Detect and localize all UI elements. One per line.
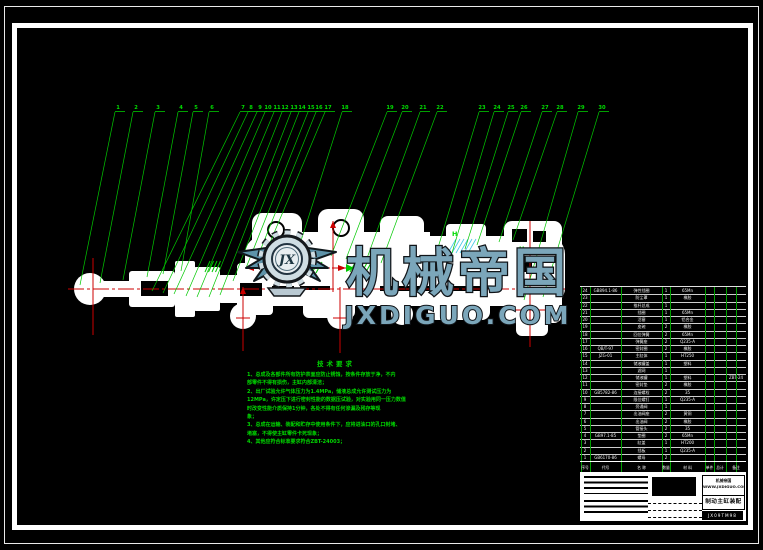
provider-line2: WWW.JXDIGUO.COM	[703, 484, 744, 490]
tech-notes: 技术要求 1、总成及各部件所有防护表面应防止锈蚀，按条件存放于净，不内部零件不得…	[247, 358, 425, 447]
tech-note-line: 3、总成在运输、装配和贮存中使用条件下，应将进油口的孔口封堵、	[247, 421, 425, 429]
balloon-number: 26	[520, 105, 528, 111]
balloon-number: 5	[194, 105, 198, 111]
bom-cell-name: 推杆总成	[621, 302, 662, 309]
bom-column-line	[726, 287, 727, 473]
bom-table: 24GB894.1-86弹性挡圈165Mn23防尘罩1橡胶22推杆总成121挡圈…	[580, 286, 746, 473]
bom-cell-name: 滤网	[621, 367, 662, 374]
bom-cell-mat: 65Mn	[670, 287, 705, 294]
signature-line	[648, 510, 702, 511]
balloon-number: 1	[116, 105, 120, 111]
bom-cell-qty: 2	[662, 345, 670, 352]
bom-cell-code: QB/T-97	[590, 345, 621, 352]
bom-column-line	[662, 287, 663, 473]
bom-cell-code	[590, 338, 621, 345]
balloon-number: 16	[315, 105, 323, 111]
bom-cell-mat	[670, 403, 705, 410]
bom-column-line	[736, 287, 737, 473]
balloon-number: 6	[210, 105, 214, 111]
bom-cell-qty: 2	[662, 425, 670, 432]
bom-cell-name: 螺母	[621, 454, 662, 461]
bom-cell-mat: 65Mn	[670, 432, 705, 439]
bom-cell-name: 出油阀	[621, 418, 662, 425]
balloon-number: 17	[324, 105, 332, 111]
bom-cell-qty: 2	[662, 418, 670, 425]
bom-cell-code	[590, 439, 621, 446]
bom-cell-code	[590, 331, 621, 338]
watermark-site-text: JXDIGUO.COM	[342, 301, 571, 330]
bom-cell-qty: 1	[662, 439, 670, 446]
bom-cell-mat: HT200	[670, 439, 705, 446]
bom-cell-qty: 1	[662, 287, 670, 294]
bom-cell-mat: 橡胶	[670, 345, 705, 352]
bom-cell-name: 防尘罩	[621, 294, 662, 301]
bom-cell-name: 回位弹簧	[621, 331, 662, 338]
drawing-number-box	[652, 477, 696, 496]
bom-cell-mat: 橡胶	[670, 418, 705, 425]
bom-cell-code	[590, 410, 621, 417]
drawing-code: JX09TM98	[702, 511, 743, 520]
balloon-number: 7	[241, 105, 245, 111]
bom-cell-mat: 35	[670, 389, 705, 396]
bom-cell-name: 垫圈	[621, 432, 662, 439]
bom-cell-code	[590, 323, 621, 330]
bom-cell-qty: 2	[662, 410, 670, 417]
bom-cell-qty: 1	[662, 352, 670, 359]
provider-box: 机械帝国 WWW.JXDIGUO.COM	[702, 475, 745, 496]
leader-line	[163, 112, 193, 274]
bom-cell-name: 储液罐	[621, 374, 662, 381]
balloon-number: 2	[134, 105, 138, 111]
drawing-title: 制动主缸装配图	[702, 495, 745, 510]
bom-cell-mat	[670, 454, 705, 461]
watermark-monogram: JX	[276, 253, 296, 268]
balloon-number: 19	[386, 105, 394, 111]
tech-note-lines: 1、总成及各部件所有防护表面应防止锈蚀，按条件存放于净，不内部零件不得有损伤，主…	[247, 371, 425, 447]
bom-cell-code	[590, 403, 621, 410]
tech-note-line: 2、出厂试验允许气体压力为1.4MPa，储液总成允许测试压力为	[247, 388, 425, 396]
bom-cell-qty: 1	[662, 396, 670, 403]
bom-column-line	[581, 287, 582, 473]
balloon-number: 18	[341, 105, 349, 111]
revision-table-upper	[584, 476, 648, 494]
bom-cell-code	[590, 381, 621, 388]
bom-cell-qty: 1	[662, 447, 670, 454]
balloon-number: 8	[249, 105, 253, 111]
bom-cell-mat: 橡胶	[670, 323, 705, 330]
tech-note-line: 1、总成及各部件所有防护表面应防止锈蚀，按条件存放于净，不内	[247, 371, 425, 379]
bom-cell-mat: 65Mn	[670, 309, 705, 316]
bom-cell-name: 挡板	[621, 447, 662, 454]
bom-cell-name: 弹簧座	[621, 338, 662, 345]
bom-cell-qty: 2	[662, 331, 670, 338]
bom-cell-mat	[670, 367, 705, 374]
tech-note-line: 12MPa，许定压下进行密封性能的数据压试验，对实验用同一压力数值	[247, 396, 425, 404]
bom-cell-code	[590, 374, 621, 381]
bom-cell-mat: Q235-A	[670, 447, 705, 454]
bom-cell-code	[590, 309, 621, 316]
bom-cell-mat: 塑料	[670, 360, 705, 367]
bom-cell-code: GB6170-86	[590, 454, 621, 461]
bom-cell-name: 出油阀座	[621, 410, 662, 417]
balloon-number: 28	[556, 105, 564, 111]
balloon-number: 10	[264, 105, 272, 111]
bom-cell-name: 弹性挡圈	[621, 287, 662, 294]
bom-cell-name: 密封垫	[621, 381, 662, 388]
bom-cell-code	[590, 316, 621, 323]
bom-cell-code: GB97.1-85	[590, 432, 621, 439]
bom-cell-qty: 1	[662, 302, 670, 309]
balloon-number: 14	[298, 105, 306, 111]
balloon-number: 30	[598, 105, 606, 111]
tech-notes-title: 技术要求	[247, 358, 425, 368]
bom-cell-qty: 1	[662, 294, 670, 301]
bom-cell-mat: 铝合金	[670, 316, 705, 323]
bom-cell-code: GB5782-86	[590, 389, 621, 396]
bom-cell-qty: 1	[662, 309, 670, 316]
bom-column-line	[714, 287, 715, 473]
bom-cell-code	[590, 302, 621, 309]
bom-cell-name: 旁通阀	[621, 403, 662, 410]
balloon-number: 23	[478, 105, 486, 111]
bom-cell-qty: 1	[662, 367, 670, 374]
bom-cell-mat	[670, 302, 705, 309]
bom-cell-name: 缸盖	[621, 439, 662, 446]
tech-note-line: 堵塞，不得使主缸零件卡死现象；	[247, 430, 425, 438]
tech-note-line: 4、其他应符合标准要求符合ZBT-24003；	[247, 438, 425, 446]
bom-column-line	[621, 287, 622, 473]
leader-line	[163, 112, 248, 293]
balloon-number: 20	[401, 105, 409, 111]
bom-cell-mat: 橡胶	[670, 381, 705, 388]
signature-line	[648, 503, 702, 504]
bom-cell-code	[590, 294, 621, 301]
bom-cell-code	[590, 425, 621, 432]
bom-cell-name: 储液罐盖	[621, 360, 662, 367]
balloon-number: 22	[436, 105, 444, 111]
bom-cell-code	[590, 396, 621, 403]
bom-cell-qty: 2	[662, 454, 670, 461]
bom-column-line	[705, 287, 706, 473]
leader-line	[465, 112, 508, 249]
bom-cell-mat: Q235-A	[670, 396, 705, 403]
bom-cell-name: 密封圈	[621, 345, 662, 352]
leader-line	[80, 112, 115, 285]
bom-cell-qty: 1	[662, 403, 670, 410]
bom-cell-code	[590, 447, 621, 454]
leader-line	[147, 112, 178, 277]
balloon-number: 25	[507, 105, 515, 111]
tech-note-line: 部零件不得有损伤，主缸内部清洁；	[247, 379, 425, 387]
bom-cell-qty: 1	[662, 374, 670, 381]
bom-cell-mat: 黄铜	[670, 410, 705, 417]
bom-cell-qty: 1	[662, 316, 670, 323]
balloon-number: 3	[156, 105, 160, 111]
balloon-number: 4	[179, 105, 183, 111]
balloon-number: 12	[281, 105, 289, 111]
bom-cell-mat: Q235-A	[670, 338, 705, 345]
bom-cell-qty: 2	[662, 323, 670, 330]
bom-cell-code	[590, 418, 621, 425]
cad-sheet: H H 123456789101112131415161718192021222…	[0, 0, 763, 550]
bom-cell-mat: 塑料	[670, 374, 705, 381]
bom-cell-qty: 1	[662, 360, 670, 367]
bom-cell-qty: 2	[662, 338, 670, 345]
bom-column-line	[670, 287, 671, 473]
revision-table-lower	[584, 500, 648, 516]
bom-cell-name: 活塞	[621, 316, 662, 323]
tech-note-line: 象；	[247, 413, 425, 421]
balloon-number: 21	[419, 105, 427, 111]
bom-cell-mat: 65Mn	[670, 331, 705, 338]
balloon-number: 24	[493, 105, 501, 111]
bom-cell-mat: HT250	[670, 352, 705, 359]
bom-column-line	[590, 287, 591, 473]
bom-cell-code: JZG-01	[590, 352, 621, 359]
bom-cell-mat: 35	[670, 425, 705, 432]
balloon-number: 11	[273, 105, 281, 111]
balloon-number: 9	[258, 105, 262, 111]
signature-line	[648, 517, 702, 518]
watermark-brand-text: 机械帝国	[346, 244, 570, 304]
leader-line	[513, 112, 557, 240]
balloon-number: 29	[577, 105, 585, 111]
title-block: 机械帝国 WWW.JXDIGUO.COM 制动主缸装配图 JX09TM98	[580, 472, 746, 521]
bom-cell-name: 管接头	[621, 425, 662, 432]
leader-line	[100, 112, 133, 283]
bom-cell-code	[590, 360, 621, 367]
bom-cell-name: 挡圈	[621, 309, 662, 316]
balloon-number: 15	[307, 105, 315, 111]
bom-cell-qty: 2	[662, 389, 670, 396]
bom-cell-qty: 2	[662, 432, 670, 439]
bom-cell-code	[590, 367, 621, 374]
watermark: JX 机械帝国 JXDIGUO.COM	[238, 233, 572, 330]
balloon-number: 27	[541, 105, 549, 111]
bom-cell-qty: 2	[662, 381, 670, 388]
bom-cell-name: 限位螺钉	[621, 396, 662, 403]
bom-cell-name: 皮碗	[621, 323, 662, 330]
bom-cell-code: GB894.1-86	[590, 287, 621, 294]
tech-note-line: 时改变性能介质保持1分钟，各处不得有任何渗漏及残存等现	[247, 405, 425, 413]
balloon-number: 13	[290, 105, 298, 111]
bom-cell-name: 连接螺栓	[621, 389, 662, 396]
bom-cell-name: 主缸体	[621, 352, 662, 359]
bom-cell-mat: 橡胶	[670, 294, 705, 301]
